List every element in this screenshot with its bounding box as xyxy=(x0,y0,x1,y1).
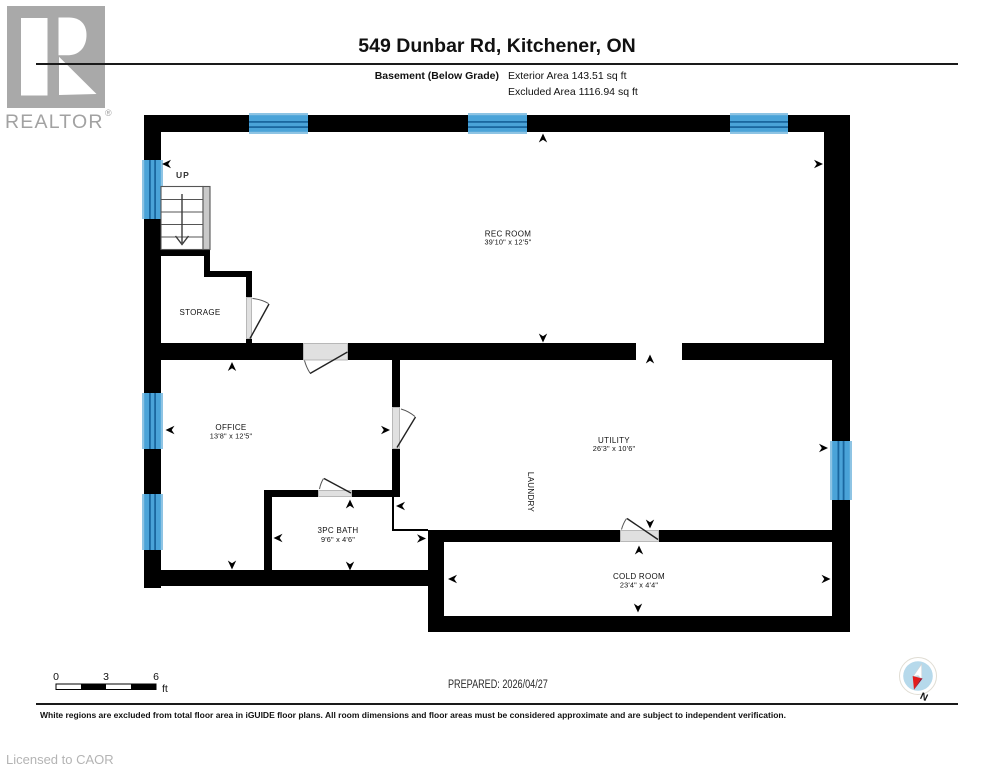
svg-text:26'3" x 10'6": 26'3" x 10'6" xyxy=(593,444,636,453)
svg-text:6: 6 xyxy=(153,671,159,683)
svg-text:3PC BATH: 3PC BATH xyxy=(318,526,359,535)
svg-text:23'4" x 4'4": 23'4" x 4'4" xyxy=(620,581,659,590)
svg-text:3: 3 xyxy=(103,671,109,683)
svg-text:13'8" x 12'5": 13'8" x 12'5" xyxy=(210,432,253,441)
svg-text:39'10" x 12'5": 39'10" x 12'5" xyxy=(485,238,532,247)
svg-text:LAUNDRY: LAUNDRY xyxy=(526,472,535,513)
svg-text:ft: ft xyxy=(162,683,168,695)
svg-text:0: 0 xyxy=(53,671,59,683)
svg-text:9'6" x 4'6": 9'6" x 4'6" xyxy=(321,535,355,544)
svg-text:®: ® xyxy=(105,108,112,118)
svg-text:STORAGE: STORAGE xyxy=(179,308,220,317)
svg-text:REALTOR: REALTOR xyxy=(5,111,104,133)
svg-text:UP: UP xyxy=(176,170,190,180)
